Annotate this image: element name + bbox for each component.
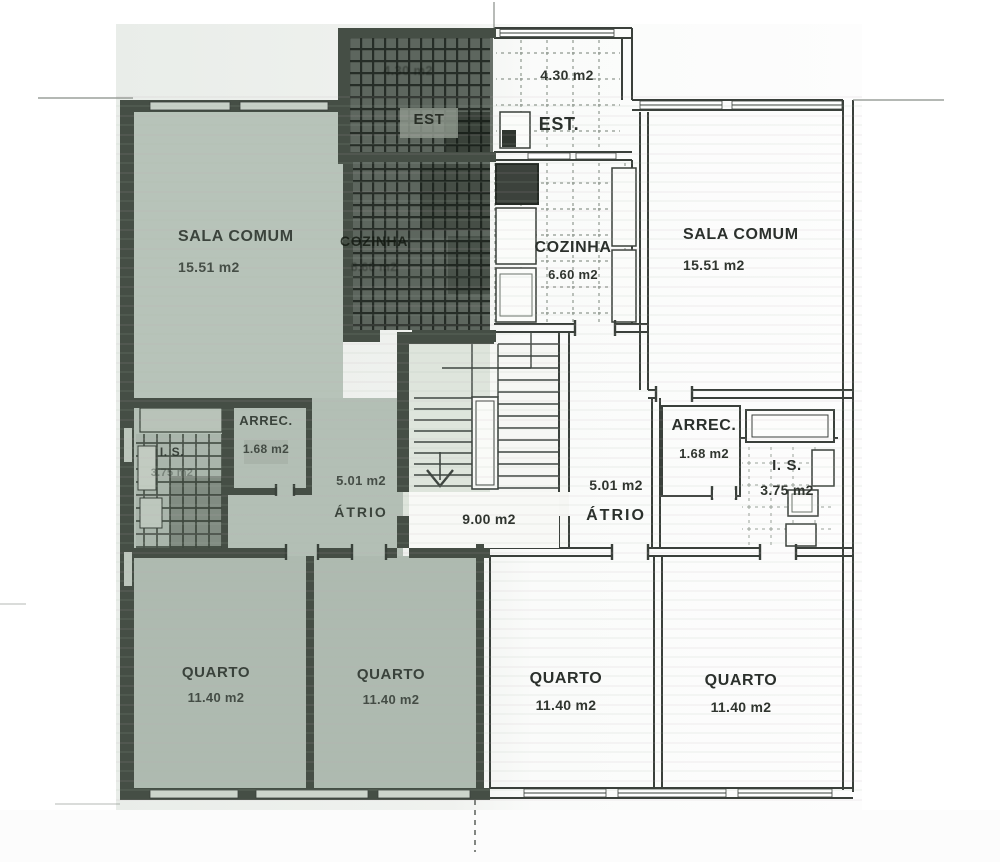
counter-fixture (612, 250, 636, 322)
room-label-quarto-1: QUARTO 11.40 m2 (182, 665, 250, 704)
room-area: 3.75 m2 (151, 468, 193, 479)
room-label-sala-comum-right: SALA COMUM 15.51 m2 (683, 227, 799, 272)
room-label-est-left-area: 4.30 m2 (383, 64, 433, 77)
room-name: EST (414, 112, 445, 127)
washbasin-fixture (812, 450, 834, 486)
room-label-quarto-4: QUARTO 11.40 m2 (705, 673, 778, 714)
room-area: 11.40 m2 (711, 700, 772, 714)
room-area: 4.30 m2 (383, 64, 433, 77)
room-label-quarto-3: QUARTO 11.40 m2 (530, 671, 603, 712)
room-area: 9.00 m2 (462, 512, 515, 526)
room-area: 11.40 m2 (188, 691, 245, 704)
room-area: 1.68 m2 (243, 443, 289, 455)
room-name: ÁTRIO (334, 505, 388, 519)
room-area: 15.51 m2 (683, 258, 745, 272)
room-area: 1.68 m2 (679, 447, 729, 460)
room-name: I. S. (772, 458, 802, 473)
room-name: SALA COMUM (178, 229, 294, 245)
room-name: QUARTO (182, 665, 250, 680)
floor-plan-canvas: 4.30 m2 EST 4.30 m2 EST. SALA COMUM 15.5… (0, 0, 1000, 862)
room-label-sala-comum-left: SALA COMUM 15.51 m2 (178, 229, 294, 274)
room-label-cozinha-right: COZINHA 6.60 m2 (534, 240, 611, 281)
room-label-est-right: EST. (539, 115, 579, 133)
room-label-atrio-left: ÁTRIO 5.01 m2 (334, 474, 388, 519)
room-name: ÁTRIO (586, 508, 646, 524)
room-name: ARREC. (672, 418, 737, 434)
room-name: COZINHA (534, 240, 611, 256)
room-area: 5.01 m2 (336, 474, 386, 487)
room-area: 6.60 m2 (351, 261, 397, 273)
sink-fixture (496, 268, 536, 322)
room-area: 15.51 m2 (178, 260, 240, 274)
room-label-est-left: EST (414, 112, 445, 127)
room-label-quarto-2: QUARTO 11.40 m2 (357, 667, 425, 706)
room-name: SALA COMUM (683, 227, 799, 243)
room-area: 6.60 m2 (548, 268, 598, 281)
counter-fixture (496, 208, 536, 264)
room-label-stair-landing: 9.00 m2 (462, 512, 515, 526)
room-name: QUARTO (357, 667, 425, 682)
counter-fixture (612, 168, 636, 246)
room-label-arrec-right: ARREC. 1.68 m2 (672, 418, 737, 460)
room-area: 5.01 m2 (589, 478, 642, 492)
bidet-fixture (786, 524, 816, 546)
room-name: EST. (539, 115, 579, 133)
room-label-est-right-area: 4.30 m2 (540, 68, 593, 82)
room-area: 4.30 m2 (540, 68, 593, 82)
dark-hatch-areas (350, 38, 490, 330)
room-name: COZINHA (340, 234, 408, 248)
room-label-atrio-right: ÁTRIO 5.01 m2 (586, 478, 646, 524)
room-label-arrec-left: ARREC. 1.68 m2 (239, 414, 292, 455)
room-label-is-left: I. S. 3.75 m2 (151, 446, 193, 479)
room-name: ARREC. (239, 414, 292, 427)
room-label-cozinha-left: COZINHA 6.60 m2 (340, 234, 408, 273)
floor-plan-drawing (0, 0, 1000, 862)
room-name: QUARTO (530, 671, 603, 687)
room-area: 11.40 m2 (363, 693, 420, 706)
room-name: QUARTO (705, 673, 778, 689)
room-label-is-right: I. S. 3.75 m2 (760, 458, 813, 497)
room-area: 11.40 m2 (536, 698, 597, 712)
room-name: I. S. (160, 446, 184, 458)
stove-fixture (496, 164, 538, 204)
room-area: 3.75 m2 (760, 483, 813, 497)
